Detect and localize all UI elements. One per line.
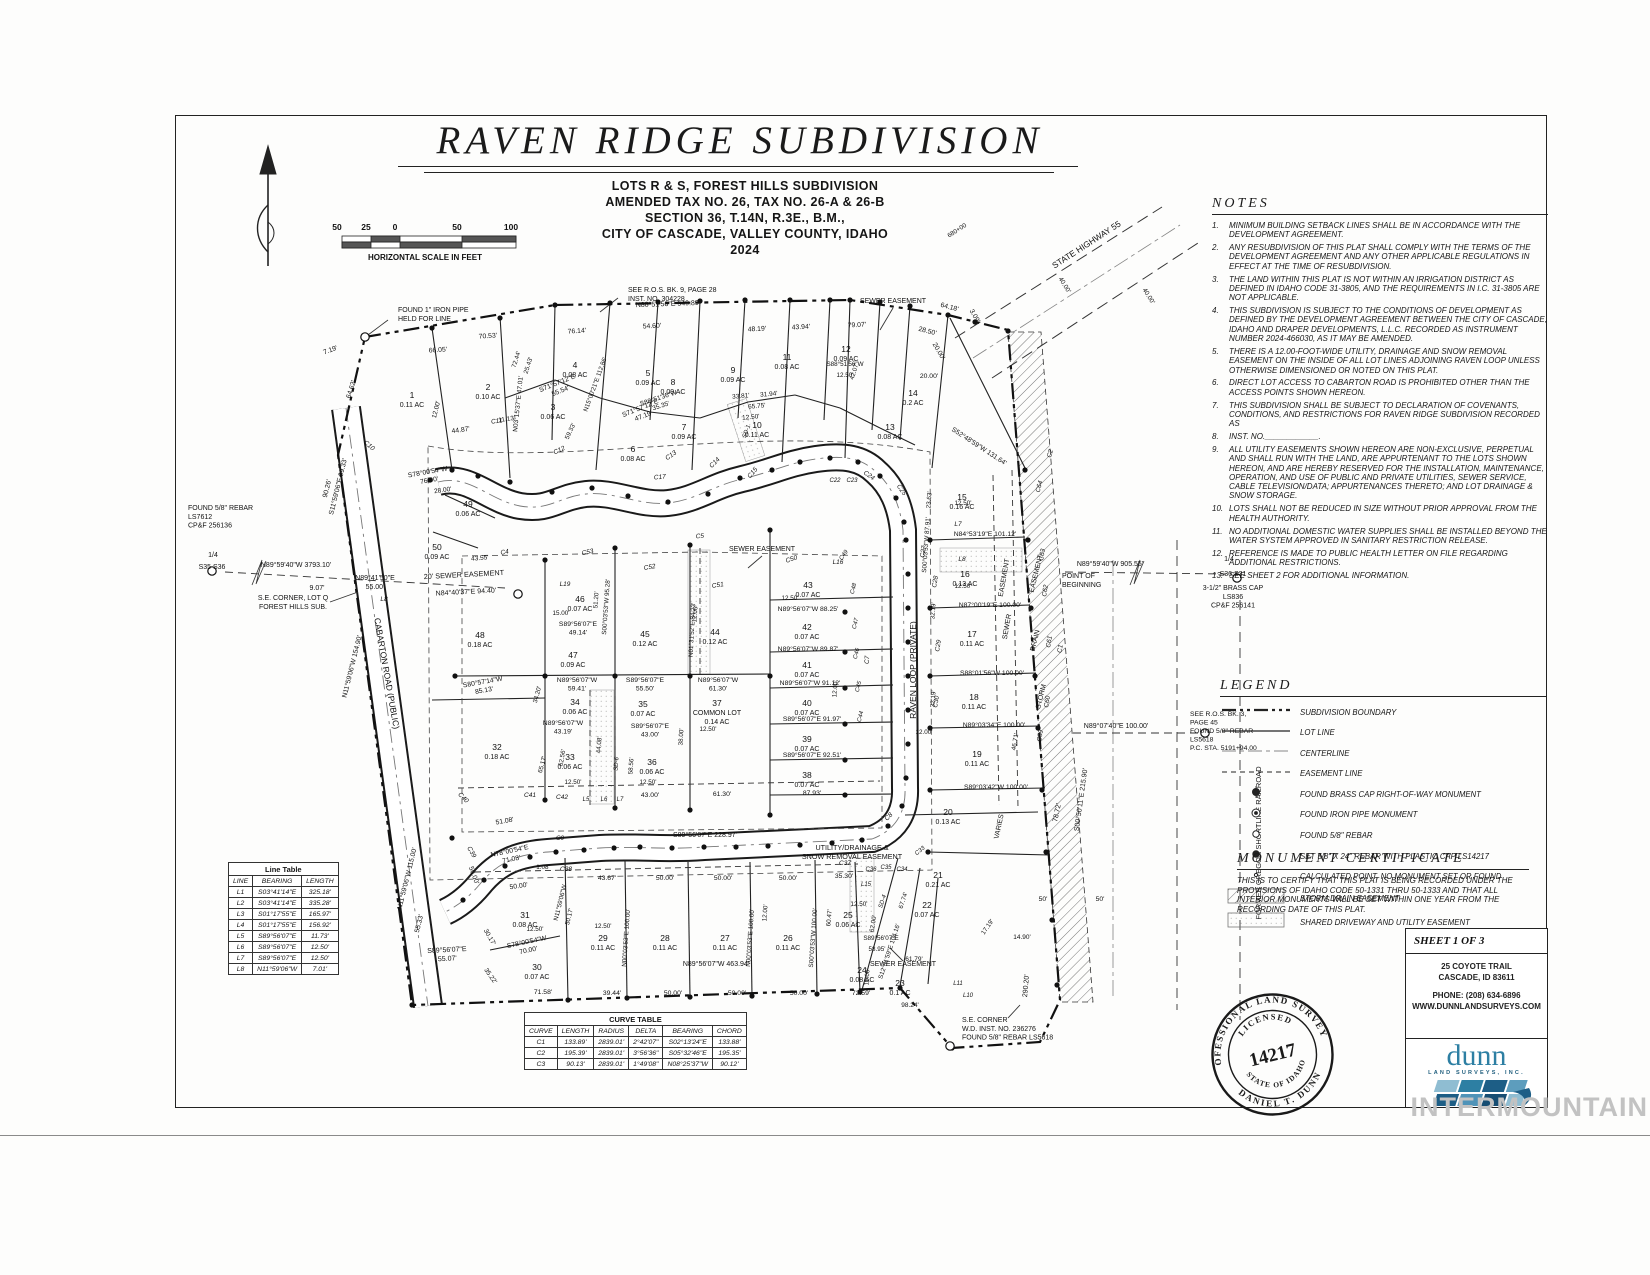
svg-text:N89°56'07"W 88.25': N89°56'07"W 88.25' xyxy=(778,605,839,613)
svg-text:61.30': 61.30' xyxy=(713,791,731,798)
svg-text:L15: L15 xyxy=(861,882,872,888)
svg-text:N89°03'34"E 100.00': N89°03'34"E 100.00' xyxy=(963,721,1026,729)
svg-text:59.33': 59.33' xyxy=(564,422,578,440)
scale-caption: HORIZONTAL SCALE IN FEET xyxy=(330,253,520,262)
svg-text:C34: C34 xyxy=(896,867,908,873)
svg-text:C1: C1 xyxy=(1056,644,1064,654)
svg-text:S00°03'53"W 95.28': S00°03'53"W 95.28' xyxy=(600,579,612,635)
svg-text:12.00': 12.00' xyxy=(761,904,769,921)
svg-text:30.17': 30.17' xyxy=(482,928,497,947)
svg-text:28.50': 28.50' xyxy=(918,326,938,338)
curve-table: CURVE TABLECURVELENGTHRADIUSDELTABEARING… xyxy=(524,1012,747,1070)
svg-text:S89°56'07"E 228.97': S89°56'07"E 228.97' xyxy=(673,831,737,839)
svg-text:C39: C39 xyxy=(465,845,477,859)
phone: PHONE: (208) 634-6896 xyxy=(1406,991,1547,1002)
svg-text:25.43': 25.43' xyxy=(523,356,535,374)
svg-text:3.09': 3.09' xyxy=(968,308,981,324)
note-item: 6.DIRECT LOT ACCESS TO CABARTON ROAD IS … xyxy=(1212,378,1548,397)
svg-text:10.00': 10.00' xyxy=(863,968,871,985)
svg-text:44.87': 44.87' xyxy=(451,426,470,435)
svg-text:C46: C46 xyxy=(853,647,862,660)
lot-27-label: 270.11 AC xyxy=(713,933,737,952)
lot-32-label: 320.18 AC xyxy=(485,742,510,761)
svg-text:C41: C41 xyxy=(524,792,536,799)
lot-6-label: 60.08 AC xyxy=(621,444,646,463)
svg-text:C51: C51 xyxy=(711,581,724,590)
svg-text:S88°01'56"W 100.00': S88°01'56"W 100.00' xyxy=(960,669,1024,677)
svg-text:L8: L8 xyxy=(958,556,966,563)
svg-text:N89°56'07"W 463.94': N89°56'07"W 463.94' xyxy=(683,960,749,968)
svg-text:C12: C12 xyxy=(552,445,566,457)
svg-text:50.00': 50.00' xyxy=(656,875,674,882)
svg-text:40.00': 40.00' xyxy=(1141,287,1156,306)
svg-text:43.55': 43.55' xyxy=(471,554,489,562)
svg-text:70.53': 70.53' xyxy=(479,332,498,340)
watermark: INTERMOUNTAIN xyxy=(1411,1092,1648,1123)
svg-text:C35: C35 xyxy=(880,865,892,871)
lot-41-label: 410.07 AC xyxy=(795,660,820,679)
svg-text:SEWER: SEWER xyxy=(1002,613,1013,639)
svg-text:66.05': 66.05' xyxy=(429,346,448,354)
svg-text:35.22': 35.22' xyxy=(482,967,498,985)
note-item: 2.ANY RESUBDIVISION OF THIS PLAT SHALL C… xyxy=(1212,243,1548,271)
svg-text:N89°07'40"E 100.00': N89°07'40"E 100.00' xyxy=(1084,722,1148,730)
svg-text:L5: L5 xyxy=(583,797,590,803)
svg-text:39.44': 39.44' xyxy=(603,990,621,997)
svg-text:L7: L7 xyxy=(617,797,624,803)
svg-text:S89°56'07"E 92.51': S89°56'07"E 92.51' xyxy=(783,751,841,759)
svg-text:S35 S36: S35 S36 xyxy=(199,564,226,571)
lot-11-label: 110.08 AC xyxy=(775,352,800,371)
legend-item: FOUND BRASS CAP RIGHT-OF-WAY MONUMENT xyxy=(1220,785,1546,803)
svg-text:SEWER EASEMENT: SEWER EASEMENT xyxy=(729,546,796,553)
svg-text:N87°00'19"E 100.00': N87°00'19"E 100.00' xyxy=(959,601,1022,609)
svg-text:50.00': 50.00' xyxy=(714,875,732,882)
legend-item: EASEMENT LINE xyxy=(1220,765,1546,783)
legend-item: SUBDIVISION BOUNDARY xyxy=(1220,703,1546,721)
easement-legend-icon xyxy=(1220,765,1292,783)
svg-text:14.90': 14.90' xyxy=(1013,934,1031,941)
svg-text:90.26': 90.26' xyxy=(322,479,333,498)
svg-text:33.81': 33.81' xyxy=(732,392,750,400)
svg-text:FOUND 1" IRON PIPEHELD FOR LIN: FOUND 1" IRON PIPEHELD FOR LINE xyxy=(398,307,469,323)
svg-text:12.50': 12.50' xyxy=(565,779,582,786)
svg-text:VARIES: VARIES xyxy=(993,813,1005,839)
lot-9-label: 90.09 AC xyxy=(721,365,746,384)
note-item: 3.THE LAND WITHIN THIS PLAT IS NOT WITHI… xyxy=(1212,275,1548,303)
lot-39-label: 390.07 AC xyxy=(795,734,820,753)
svg-text:46.71': 46.71' xyxy=(1011,733,1021,751)
svg-text:C30: C30 xyxy=(932,695,941,708)
svg-text:67.74': 67.74' xyxy=(898,891,910,909)
svg-text:79.07': 79.07' xyxy=(848,322,867,330)
svg-text:C28: C28 xyxy=(931,575,940,588)
svg-text:15.00': 15.00' xyxy=(553,610,570,617)
svg-text:23.63': 23.63' xyxy=(925,491,933,508)
svg-text:N89°59'40"W 3793.10': N89°59'40"W 3793.10' xyxy=(261,561,331,569)
svg-text:FOUND 5/8" REBARLS7612CP&F 256: FOUND 5/8" REBARLS7612CP&F 256136 xyxy=(188,505,253,530)
svg-text:C13: C13 xyxy=(664,449,678,462)
note-item: 7.THIS SUBDIVISION SHALL BE SUBJECT TO D… xyxy=(1212,401,1548,429)
svg-text:38.00': 38.00' xyxy=(678,728,686,745)
svg-text:C17: C17 xyxy=(654,473,667,481)
lot-48-label: 480.18 AC xyxy=(468,630,493,649)
rebar-legend-icon xyxy=(1220,827,1292,845)
svg-text:S.E. CORNERW.D. INST. NO. 2362: S.E. CORNERW.D. INST. NO. 236276FOUND 5/… xyxy=(962,1017,1053,1042)
svg-text:L11: L11 xyxy=(953,981,963,987)
svg-text:S52°48'59"W 131.64': S52°48'59"W 131.64' xyxy=(950,426,1008,468)
lot-28-label: 280.11 AC xyxy=(653,933,677,952)
svg-text:L10: L10 xyxy=(963,993,974,999)
svg-text:50.00': 50.00' xyxy=(728,990,746,997)
stipplebox-legend-icon xyxy=(1220,912,1292,933)
svg-text:N84°40'37"E 94.40': N84°40'37"E 94.40' xyxy=(435,586,496,597)
svg-text:43.94': 43.94' xyxy=(792,324,811,332)
svg-text:65.17': 65.17' xyxy=(537,756,548,774)
note-item: 8.INST. NO.____________. xyxy=(1212,432,1548,441)
svg-text:N84°53'19"E 101.12': N84°53'19"E 101.12' xyxy=(954,530,1017,538)
sheet-number: SHEET 1 OF 3 xyxy=(1406,929,1547,954)
address-line1: 25 COYOTE TRAIL xyxy=(1406,962,1547,973)
svg-text:N89°56'07"W43.19': N89°56'07"W43.19' xyxy=(543,719,584,736)
boundary-legend-icon xyxy=(1220,703,1292,721)
svg-text:20.00': 20.00' xyxy=(920,373,938,380)
svg-text:N00°03'53"E 100.00': N00°03'53"E 100.00' xyxy=(620,909,632,967)
svg-text:C38: C38 xyxy=(560,866,572,873)
svg-text:48.19': 48.19' xyxy=(748,326,767,334)
lot-5-label: 50.09 AC xyxy=(636,368,661,387)
svg-text:12.50': 12.50' xyxy=(851,901,868,908)
note-item: 5.THERE IS A 12.00-FOOT-WIDE UTILITY, DR… xyxy=(1212,347,1548,375)
svg-text:C14: C14 xyxy=(708,456,722,470)
svg-text:20' SEWER EASEMENT: 20' SEWER EASEMENT xyxy=(423,568,504,581)
lot-2-label: 20.10 AC xyxy=(476,382,501,401)
svg-text:50.00': 50.00' xyxy=(509,882,528,891)
lot-38-label: 380.07 AC xyxy=(795,770,820,789)
svg-text:C40: C40 xyxy=(456,791,470,805)
note-item: 11.NO ADDITIONAL DOMESTIC WATER SUPPLIES… xyxy=(1212,527,1548,546)
svg-text:C52: C52 xyxy=(643,563,656,572)
svg-text:290.20': 290.20' xyxy=(1022,974,1031,997)
svg-text:72.59': 72.59' xyxy=(852,990,870,997)
svg-text:3-1/2" BRASS CAPLS836CP&F 2561: 3-1/2" BRASS CAPLS836CP&F 256141 xyxy=(1203,585,1264,610)
lot-17-label: 170.11 AC xyxy=(960,629,984,648)
svg-text:64.62': 64.62' xyxy=(345,380,357,400)
svg-text:17.19': 17.19' xyxy=(980,918,995,936)
svg-text:58.95': 58.95' xyxy=(869,946,886,953)
svg-text:N03°15'37"E 47.01': N03°15'37"E 47.01' xyxy=(511,375,525,432)
lot-21-label: 210.21 AC xyxy=(926,870,951,889)
svg-text:S89°56'07"E55.50': S89°56'07"E55.50' xyxy=(626,676,665,693)
svg-text:C23: C23 xyxy=(846,478,858,484)
svg-text:C2: C2 xyxy=(1046,448,1055,458)
lot-26-label: 260.11 AC xyxy=(776,933,800,952)
svg-text:32.19': 32.19' xyxy=(929,602,937,619)
address-line2: CASCADE, ID 83611 xyxy=(1406,973,1547,984)
title-rule-2 xyxy=(424,172,1054,173)
svg-text:12.06': 12.06' xyxy=(691,605,699,622)
svg-text:C45: C45 xyxy=(855,680,864,693)
svg-text:C48: C48 xyxy=(850,582,859,595)
svg-text:60.47': 60.47' xyxy=(825,909,833,927)
svg-text:12.50': 12.50' xyxy=(955,500,972,507)
lot-19-label: 190.11 AC xyxy=(965,749,989,768)
svg-text:72.44': 72.44' xyxy=(511,350,523,368)
svg-text:L6: L6 xyxy=(601,797,608,803)
note-item: 13.SEE SHEET 2 FOR ADDITIONAL INFORMATIO… xyxy=(1212,571,1548,580)
line-table: Line TableLINEBEARINGLENGTHL1S03°41'14"E… xyxy=(228,862,339,975)
lot-45-label: 450.12 AC xyxy=(633,629,658,648)
svg-text:C7: C7 xyxy=(864,655,871,664)
sheet-info-block: SHEET 1 OF 3 25 COYOTE TRAIL CASCADE, ID… xyxy=(1405,928,1548,1108)
lot-42-label: 420.07 AC xyxy=(795,622,820,641)
note-item: 1.MINIMUM BUILDING SETBACK LINES SHALL B… xyxy=(1212,221,1548,240)
centerline-legend-icon xyxy=(1220,744,1292,762)
surveyor-seal: PROFESSIONAL LAND SURVEYOR DANIEL T. DUN… xyxy=(1200,982,1345,1127)
svg-text:40.00': 40.00' xyxy=(1057,276,1072,295)
plat-annotations: FOUND 1" IRON PIPEHELD FOR LINESEE R.O.S… xyxy=(188,218,1264,1041)
svg-text:C50: C50 xyxy=(785,554,799,564)
ironpipe-legend-icon xyxy=(1220,806,1292,824)
svg-text:12.00': 12.00' xyxy=(831,680,839,697)
svg-text:43.00': 43.00' xyxy=(641,792,659,799)
svg-text:43.67': 43.67' xyxy=(598,875,616,882)
svg-text:C47: C47 xyxy=(852,617,861,630)
monument-certificate: MONUMENT CERTIFICATE THIS IS TO CERTIFY … xyxy=(1237,851,1529,914)
lot-36-label: 360.06 AC xyxy=(640,757,665,776)
svg-text:N00°03'53"E 100.00': N00°03'53"E 100.00' xyxy=(744,909,756,967)
lot-47-label: 470.09 AC xyxy=(561,650,586,669)
svg-text:UTILITY/DRAINAGE &SNOW REMOVAL: UTILITY/DRAINAGE &SNOW REMOVAL EASEMENT xyxy=(802,843,903,861)
legend-item: LOT LINE xyxy=(1220,724,1546,742)
svg-text:14217: 14217 xyxy=(1247,1039,1299,1071)
svg-text:S89°56'07"E 91.97': S89°56'07"E 91.97' xyxy=(783,715,841,723)
svg-text:12.50': 12.50' xyxy=(640,779,657,786)
svg-text:C42: C42 xyxy=(556,794,568,801)
svg-text:C5: C5 xyxy=(695,533,704,541)
lot-3-label: 30.06 AC xyxy=(541,402,566,421)
svg-text:12.00': 12.00' xyxy=(431,400,442,419)
svg-text:12.50': 12.50' xyxy=(527,926,544,933)
monument-certificate-body: THIS IS TO CERTIFY THAT THIS PLAT IS BEI… xyxy=(1237,876,1529,914)
svg-text:1.08': 1.08' xyxy=(536,864,549,871)
svg-text:SEWER EASEMENT: SEWER EASEMENT xyxy=(860,298,927,305)
svg-text:L19: L19 xyxy=(560,581,571,588)
logo-wordmark: dunn xyxy=(1406,1042,1547,1070)
lotline-legend-icon xyxy=(1220,724,1292,742)
svg-text:C49: C49 xyxy=(839,549,851,562)
svg-text:S00°03'53"W 100.00': S00°03'53"W 100.00' xyxy=(807,908,819,968)
svg-text:62.00': 62.00' xyxy=(869,915,879,933)
lot-35-label: 350.07 AC xyxy=(631,699,656,718)
subtitle-block: LOTS R & S, FOREST HILLS SUBDIVISIONAMEN… xyxy=(465,178,1025,258)
svg-text:C4: C4 xyxy=(500,548,510,556)
svg-text:58.56': 58.56' xyxy=(627,757,635,774)
svg-text:N89°56'07"W 91.12': N89°56'07"W 91.12' xyxy=(780,679,841,687)
svg-text:STATE HIGHWAY 55: STATE HIGHWAY 55 xyxy=(1050,218,1123,270)
svg-text:64.18': 64.18' xyxy=(940,302,960,314)
north-arrow-icon xyxy=(258,146,277,266)
lot-30-label: 300.07 AC xyxy=(525,962,550,981)
svg-text:C36: C36 xyxy=(865,867,877,873)
svg-text:12.50': 12.50' xyxy=(782,595,799,602)
note-item: 10.LOTS SHALL NOT BE REDUCED IN SIZE WIT… xyxy=(1212,504,1548,523)
svg-text:C22: C22 xyxy=(829,478,841,484)
svg-text:S.E. CORNER, LOT QFOREST HILLS: S.E. CORNER, LOT QFOREST HILLS SUB. xyxy=(258,595,329,611)
notes-panel: NOTES 1.MINIMUM BUILDING SETBACK LINES S… xyxy=(1212,196,1548,584)
brasscap-legend-icon xyxy=(1220,785,1292,803)
svg-text:L8: L8 xyxy=(380,596,388,603)
svg-text:S89°03'42"W 100.00': S89°03'42"W 100.00' xyxy=(964,783,1028,791)
lot-7-label: 70.09 AC xyxy=(672,422,697,441)
lot-13-label: 130.08 AC xyxy=(878,422,903,441)
svg-text:87.93': 87.93' xyxy=(803,790,821,797)
svg-text:50': 50' xyxy=(1039,896,1048,903)
legend-item: CENTERLINE xyxy=(1220,744,1546,762)
svg-text:N89°56'07"W61.30': N89°56'07"W61.30' xyxy=(698,676,739,693)
lot-29-label: 290.11 AC xyxy=(591,933,615,952)
monument-certificate-heading: MONUMENT CERTIFICATE xyxy=(1237,851,1529,870)
lot-43-label: 430.07 AC xyxy=(796,580,821,599)
svg-text:98.24': 98.24' xyxy=(901,1002,919,1009)
svg-text:12.50': 12.50' xyxy=(595,923,612,930)
svg-text:76.14': 76.14' xyxy=(568,327,587,335)
svg-text:S78°00'54"W70.00': S78°00'54"W70.00' xyxy=(506,934,549,959)
legend-heading: LEGEND xyxy=(1220,678,1546,697)
svg-text:S89°56'07"E49.14': S89°56'07"E49.14' xyxy=(559,620,598,637)
svg-text:1/4: 1/4 xyxy=(208,552,218,559)
notes-heading: NOTES xyxy=(1212,196,1548,215)
lot-18-label: 180.11 AC xyxy=(962,692,986,711)
svg-text:C37: C37 xyxy=(839,860,851,867)
svg-text:S89°56'07"E43.00': S89°56'07"E43.00' xyxy=(631,722,670,739)
svg-text:50.00': 50.00' xyxy=(790,990,808,997)
svg-text:50': 50' xyxy=(1096,896,1105,903)
svg-text:S89°56'07"E: S89°56'07"E xyxy=(863,934,898,942)
legend-item: FOUND IRON PIPE MONUMENT xyxy=(1220,806,1546,824)
svg-text:65.75': 65.75' xyxy=(748,402,766,410)
svg-text:20.00': 20.00' xyxy=(931,342,946,361)
lot-40-label: 400.07 AC xyxy=(795,698,820,717)
title-rule xyxy=(398,166,1078,167)
svg-text:C11: C11 xyxy=(491,417,504,426)
svg-text:N89°59'40"W 905.55': N89°59'40"W 905.55' xyxy=(1077,560,1143,568)
plat-sheet: 10.11 AC20.10 AC30.06 AC40.08 AC50.09 AC… xyxy=(0,0,1650,1275)
note-item: 12.REFERENCE IS MADE TO PUBLIC HEALTH LE… xyxy=(1212,549,1548,568)
svg-text:35.30': 35.30' xyxy=(835,873,853,880)
lot-37-label: 37COMMON LOT0.14 AC xyxy=(693,698,742,726)
svg-text:SD-6: SD-6 xyxy=(614,756,621,771)
svg-text:7.19': 7.19' xyxy=(322,345,338,357)
svg-text:51.08': 51.08' xyxy=(495,816,514,826)
svg-text:C44: C44 xyxy=(857,710,866,723)
svg-text:34.20': 34.20' xyxy=(532,686,543,704)
lot-34-label: 340.06 AC xyxy=(563,697,588,716)
svg-text:S80°57'14"W85.13': S80°57'14"W85.13' xyxy=(462,675,505,698)
svg-text:44.08': 44.08' xyxy=(595,736,603,753)
page-title: RAVEN RIDGE SUBDIVISION xyxy=(330,118,1150,163)
surveyor-contact: 25 COYOTE TRAIL CASCADE, ID 83611 PHONE:… xyxy=(1406,954,1547,1039)
svg-text:RAVEN LOOP (PRIVATE): RAVEN LOOP (PRIVATE) xyxy=(908,621,918,719)
svg-text:61.79': 61.79' xyxy=(905,956,923,963)
scale-bar: 5025050100 HORIZONTAL SCALE IN FEET xyxy=(330,222,530,266)
legend-item: FOUND 5/8" REBAR xyxy=(1220,827,1546,845)
svg-text:12.00': 12.00' xyxy=(916,729,933,736)
svg-text:C33: C33 xyxy=(914,845,927,857)
note-item: 4.THIS SUBDIVISION IS SUBJECT TO THE CON… xyxy=(1212,306,1548,343)
lot-14-label: 140.2 AC xyxy=(902,388,923,407)
lot-1-label: 10.11 AC xyxy=(400,390,424,409)
svg-text:N89°56'07"W 89.87': N89°56'07"W 89.87' xyxy=(778,645,839,653)
svg-text:50.00': 50.00' xyxy=(779,875,797,882)
svg-text:POINT OFBEGINNING: POINT OFBEGINNING xyxy=(1062,573,1101,589)
note-item: 9.ALL UTILITY EASEMENTS SHOWN HEREON ARE… xyxy=(1212,445,1548,501)
svg-text:50.00': 50.00' xyxy=(664,990,682,997)
svg-text:N11°59'06"W 154.90': N11°59'06"W 154.90' xyxy=(340,635,363,699)
svg-text:54.60': 54.60' xyxy=(643,323,662,331)
lot-46-label: 460.07 AC xyxy=(568,594,593,613)
lot-20-label: 200.13 AC xyxy=(936,807,961,826)
svg-text:12.50': 12.50' xyxy=(955,583,972,590)
website: WWW.DUNNLANDSURVEYS.COM xyxy=(1406,1002,1547,1013)
svg-text:C53: C53 xyxy=(581,548,594,557)
svg-text:71.58': 71.58' xyxy=(534,989,552,996)
svg-text:N15°00'21"E 112.86': N15°00'21"E 112.86' xyxy=(582,356,609,413)
storm-drain-easement-band xyxy=(1008,332,1093,1002)
svg-text:9.07': 9.07' xyxy=(310,585,325,592)
svg-text:51.20': 51.20' xyxy=(592,591,600,608)
svg-text:C29: C29 xyxy=(934,639,943,652)
svg-text:L7: L7 xyxy=(954,521,962,528)
svg-text:C9: C9 xyxy=(556,835,565,842)
svg-text:12.50': 12.50' xyxy=(700,726,717,733)
